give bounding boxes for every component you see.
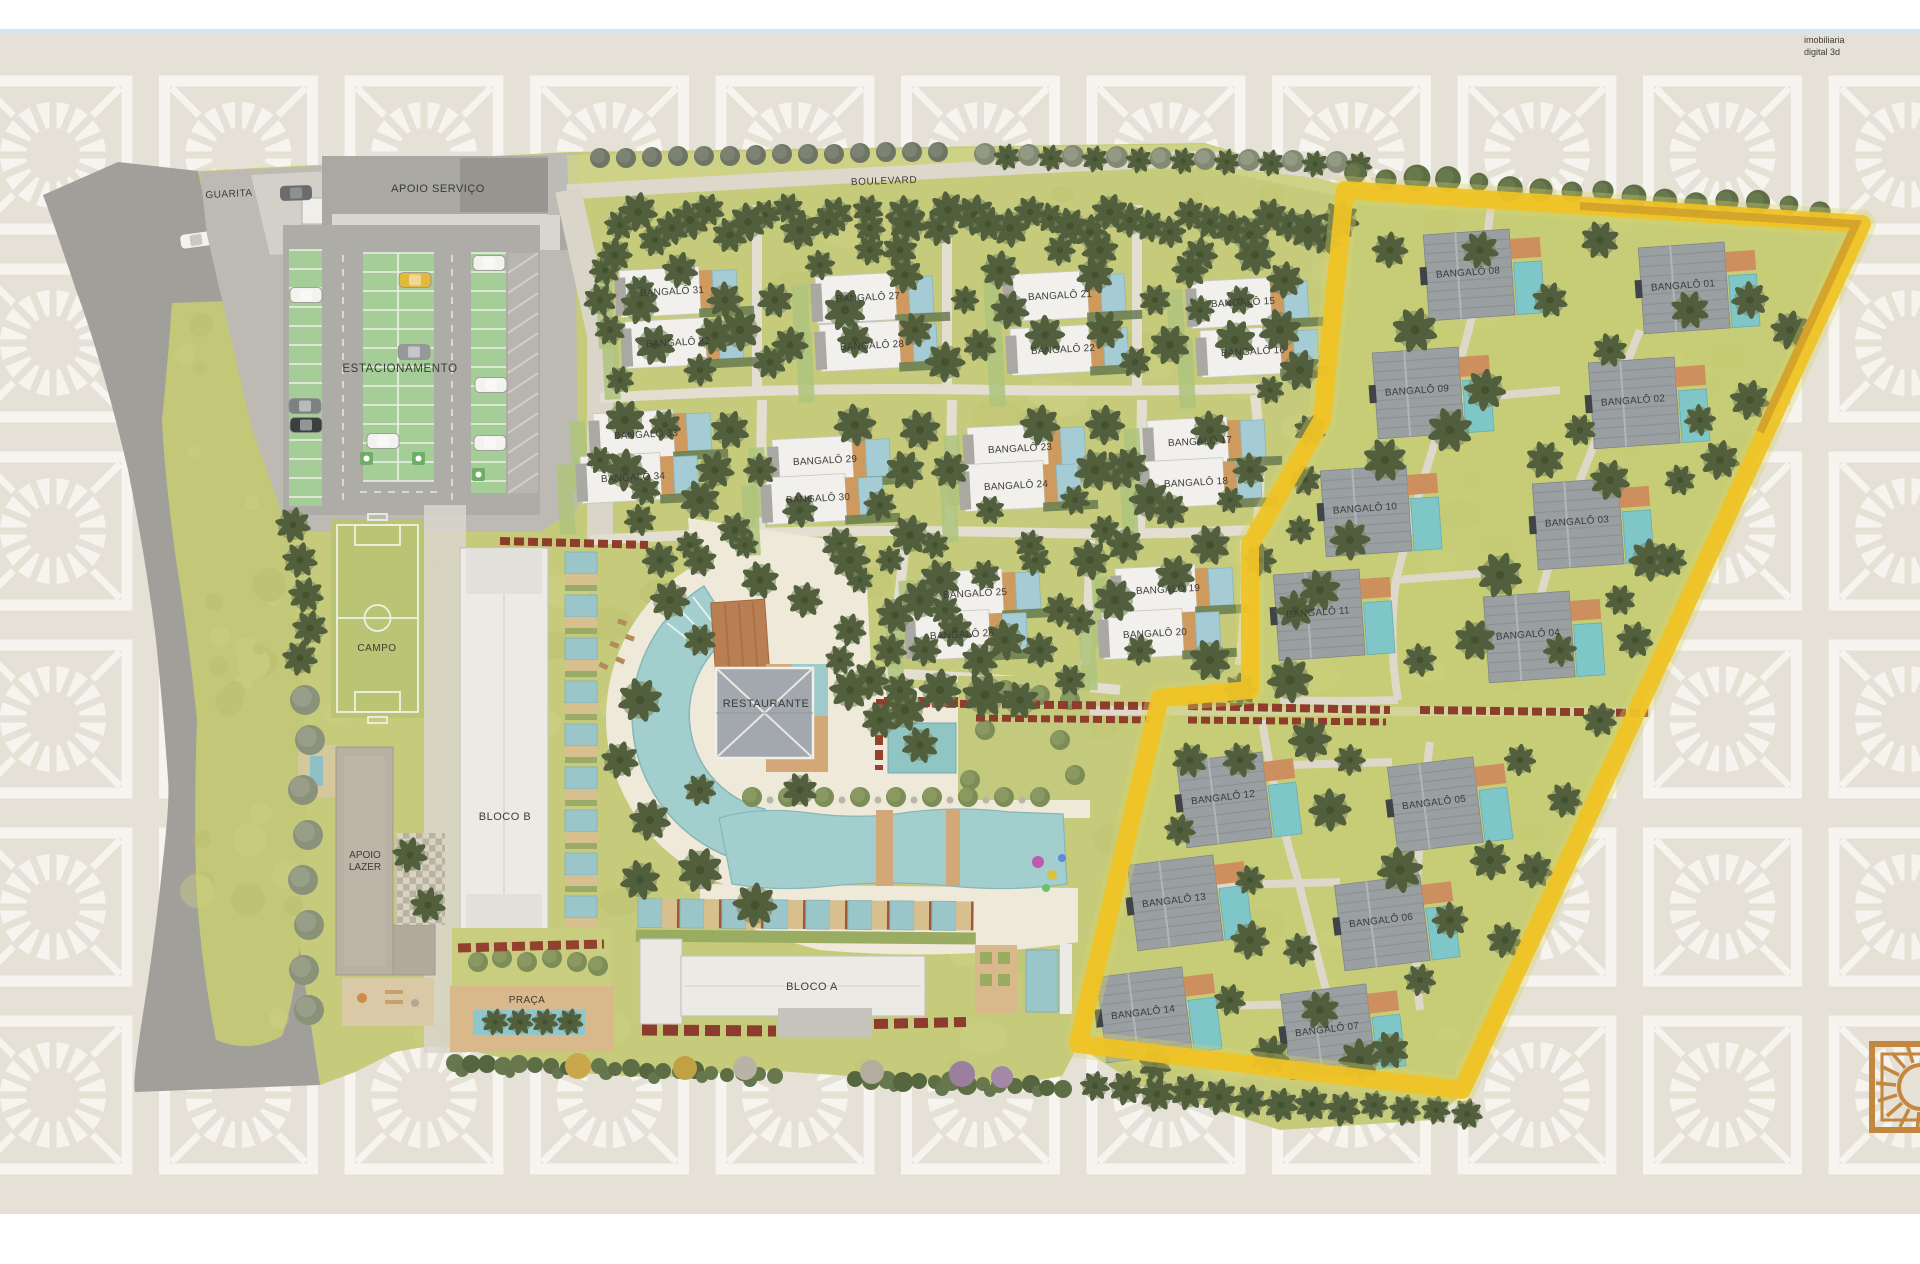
svg-text:PRAÇA: PRAÇA — [509, 995, 545, 1006]
svg-text:ESTACIONAMENTO: ESTACIONAMENTO — [342, 363, 457, 375]
svg-text:CAMPO: CAMPO — [357, 643, 396, 654]
svg-text:APOIO: APOIO — [349, 850, 381, 861]
svg-text:BOULEVARD: BOULEVARD — [851, 175, 918, 188]
svg-text:APOIO SERVIÇO: APOIO SERVIÇO — [391, 183, 485, 195]
svg-text:LAZER: LAZER — [349, 862, 381, 873]
svg-text:RESTAURANTE: RESTAURANTE — [723, 698, 810, 710]
svg-text:BLOCO B: BLOCO B — [479, 811, 531, 823]
svg-text:BLOCO A: BLOCO A — [786, 981, 838, 993]
svg-text:imobiliaria: imobiliaria — [1804, 35, 1845, 45]
svg-text:digital 3d: digital 3d — [1804, 47, 1840, 57]
